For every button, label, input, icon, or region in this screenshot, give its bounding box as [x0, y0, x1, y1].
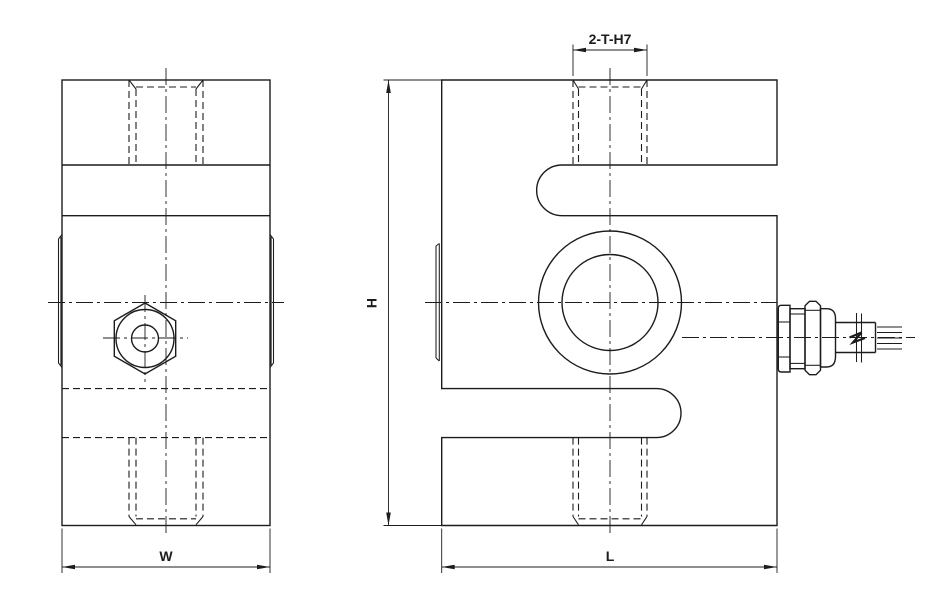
gland-spacer-ring [790, 309, 805, 369]
gland-flange-nut [778, 305, 790, 372]
technical-drawing-canvas: 2-T-H7 H W L [0, 0, 933, 610]
label-width: W [159, 548, 173, 564]
label-thread-callout: 2-T-H7 [589, 31, 632, 47]
label-length: L [606, 548, 615, 564]
drawing-lines [48, 45, 915, 574]
cable-gland-end-view [103, 295, 188, 382]
cable-wires [877, 327, 902, 349]
cable-gland [778, 301, 902, 374]
gland-hex-body [805, 301, 821, 374]
dimension-arrowheads [62, 48, 777, 570]
arrow-length-right [764, 565, 777, 570]
side-view [48, 68, 284, 573]
arrow-thread-right [634, 48, 647, 53]
arrow-length-left [442, 565, 455, 570]
arrow-width-left [62, 565, 75, 570]
arrow-height-top [386, 80, 391, 93]
label-height: H [364, 298, 380, 308]
front-view [384, 45, 916, 574]
arrow-width-right [257, 565, 270, 570]
arrow-thread-left [573, 48, 586, 53]
arrow-height-bottom [386, 513, 391, 526]
load-cell-engineering-drawing: 2-T-H7 H W L [0, 0, 933, 610]
dimension-labels: 2-T-H7 H W L [159, 31, 631, 564]
